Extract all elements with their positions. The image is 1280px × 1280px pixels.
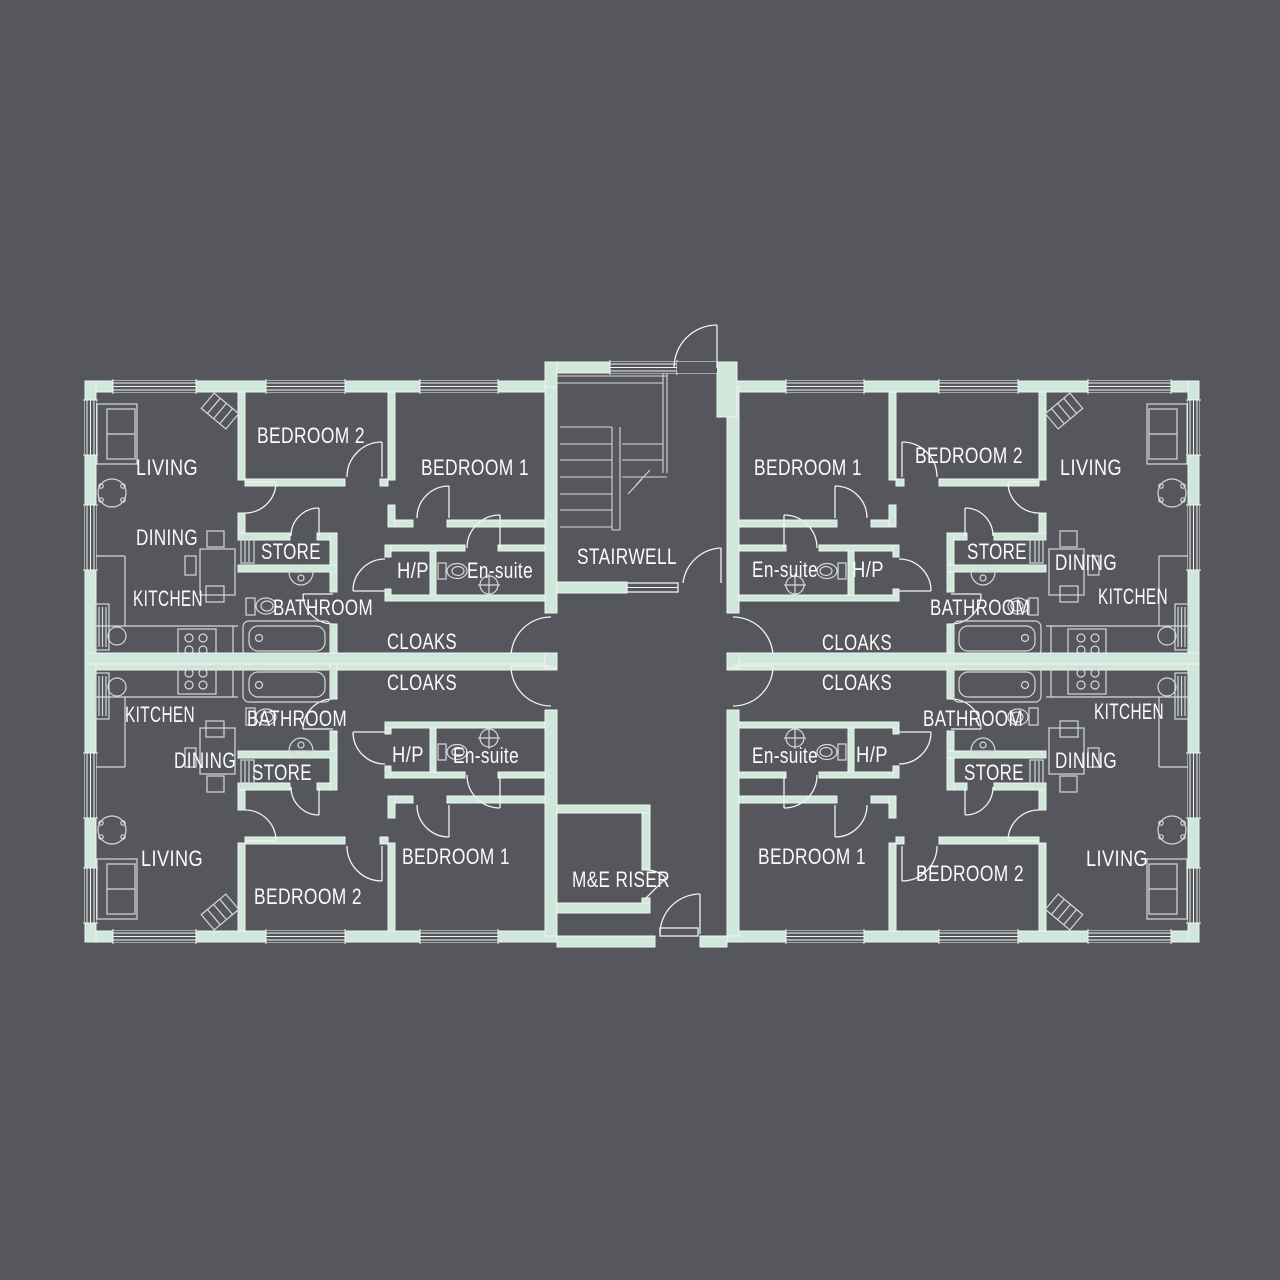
riser-wall-segment <box>557 805 650 813</box>
room-label-cloaks: CLOAKS <box>822 670 892 695</box>
core-wall-segment <box>557 936 655 947</box>
room-label-bedroom-1: BEDROOM 1 <box>758 844 866 869</box>
stairwell-inner-door <box>683 548 721 583</box>
stair-landing-rail <box>663 373 667 473</box>
room-label-living: LIVING <box>1060 455 1122 480</box>
room-label-dining: DINING <box>1055 748 1117 773</box>
stairs <box>557 373 667 530</box>
core-wall-segment <box>717 362 737 417</box>
stair-break-line <box>628 470 650 494</box>
core-labels: STAIRWELLM&E RISER <box>572 544 677 892</box>
apartment-bottom-right <box>727 653 1201 944</box>
room-label-living: LIVING <box>1086 846 1148 871</box>
room-label-bedroom-2: BEDROOM 2 <box>915 443 1023 468</box>
room-label-bedroom-2: BEDROOM 2 <box>254 884 362 909</box>
core-wall-segment <box>545 362 557 387</box>
room-label-en-suite: En-suite <box>453 743 519 768</box>
room-label-store: STORE <box>964 760 1024 785</box>
riser-wall-segment <box>557 903 650 913</box>
stair-landing-edge <box>557 376 667 383</box>
room-label-kitchen: KITCHEN <box>1094 699 1164 724</box>
room-label-en-suite: En-suite <box>467 558 533 583</box>
room-label-bathroom: BATHROOM <box>930 595 1030 620</box>
room-label-cloaks: CLOAKS <box>387 670 457 695</box>
riser-wall-segment <box>642 813 650 870</box>
room-label-bathroom: BATHROOM <box>923 706 1023 731</box>
room-label-store: STORE <box>261 539 321 564</box>
central-core <box>545 325 737 947</box>
room-label-bathroom: BATHROOM <box>273 595 373 620</box>
room-label-cloaks: CLOAKS <box>822 630 892 655</box>
room-label-m-e-riser: M&E RISER <box>572 867 670 892</box>
floor-plan-page: STAIRWELLM&E RISERLIVINGBEDROOM 2BEDROOM… <box>0 0 1280 1280</box>
floor-plan-drawing: STAIRWELLM&E RISERLIVINGBEDROOM 2BEDROOM… <box>0 0 1280 1280</box>
room-label-dining: DINING <box>174 748 236 773</box>
room-label-h-p: H/P <box>392 742 424 767</box>
core-wall-segment <box>557 582 627 593</box>
room-label-dining: DINING <box>1055 550 1117 575</box>
front-door-opening <box>677 362 717 373</box>
room-label-kitchen: KITCHEN <box>133 586 203 611</box>
room-label-store: STORE <box>252 760 312 785</box>
room-label-bedroom-2: BEDROOM 2 <box>916 861 1024 886</box>
room-label-bedroom-1: BEDROOM 1 <box>402 844 510 869</box>
room-label-dining: DINING <box>136 525 198 550</box>
room-label-h-p: H/P <box>397 558 429 583</box>
stair-stringer <box>612 427 620 530</box>
room-label-living: LIVING <box>136 455 198 480</box>
room-label-bathroom: BATHROOM <box>247 706 347 731</box>
room-label-bedroom-2: BEDROOM 2 <box>257 423 365 448</box>
room-label-bedroom-1: BEDROOM 1 <box>754 455 862 480</box>
room-label-en-suite: En-suite <box>752 557 818 582</box>
room-label-living: LIVING <box>141 846 203 871</box>
room-label-stairwell: STAIRWELL <box>577 544 677 569</box>
room-label-en-suite: En-suite <box>752 743 818 768</box>
room-label-kitchen: KITCHEN <box>1098 584 1168 609</box>
core-wall-segment <box>700 936 727 947</box>
apartment-top-right <box>727 379 1201 670</box>
room-label-bedroom-1: BEDROOM 1 <box>421 455 529 480</box>
room-label-cloaks: CLOAKS <box>387 629 457 654</box>
room-label-h-p: H/P <box>856 742 888 767</box>
room-label-kitchen: KITCHEN <box>125 702 195 727</box>
rear-door-leaf <box>660 928 698 936</box>
room-label-store: STORE <box>967 539 1027 564</box>
room-label-h-p: H/P <box>852 557 884 582</box>
